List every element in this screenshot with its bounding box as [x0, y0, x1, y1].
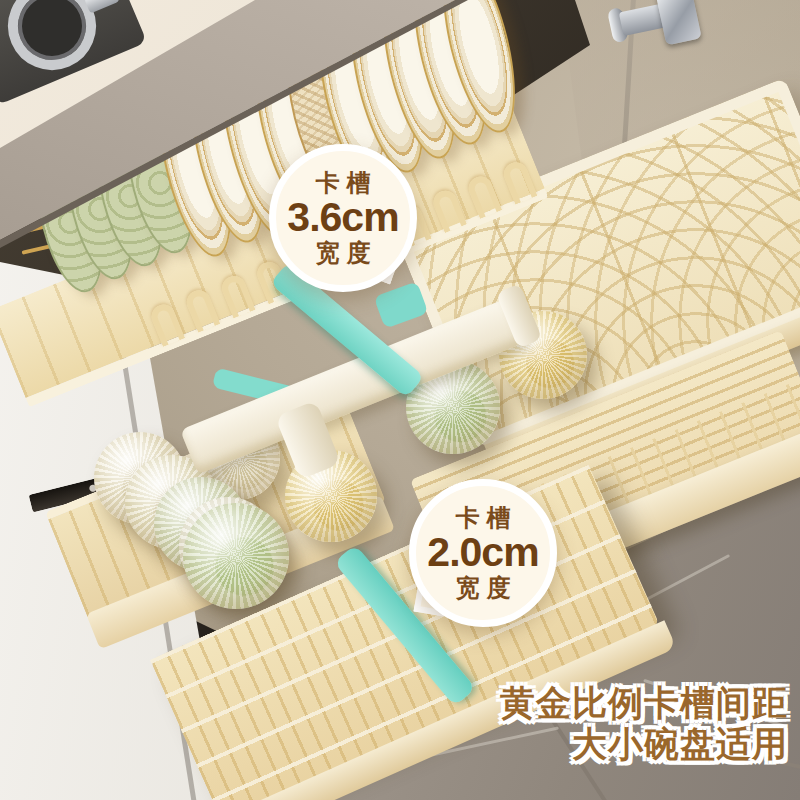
badge-label-bottom: 宽度 [449, 576, 518, 600]
product-photo-scene: 卡槽 3.6cm 宽度 卡槽 2.0cm 宽度 黄金比例卡槽间距 大小碗盘适用 [0, 0, 800, 800]
bowl-green-front [183, 503, 289, 609]
badge-label-top: 卡槽 [309, 171, 378, 195]
marketing-caption: 黄金比例卡槽间距 大小碗盘适用 [500, 682, 788, 765]
badge-value: 2.0cm [427, 532, 538, 574]
hinge-plate [655, 0, 701, 45]
badge-label-top: 卡槽 [449, 506, 518, 530]
caption-line-2: 大小碗盘适用 [500, 723, 788, 764]
badge-value: 3.6cm [287, 197, 398, 239]
slot-width-badge-2-0cm: 卡槽 2.0cm 宽度 [409, 479, 557, 627]
badge-label-bottom: 宽度 [309, 241, 378, 265]
slot-width-badge-3-6cm: 卡槽 3.6cm 宽度 [269, 144, 417, 292]
caption-line-1: 黄金比例卡槽间距 [500, 682, 788, 723]
